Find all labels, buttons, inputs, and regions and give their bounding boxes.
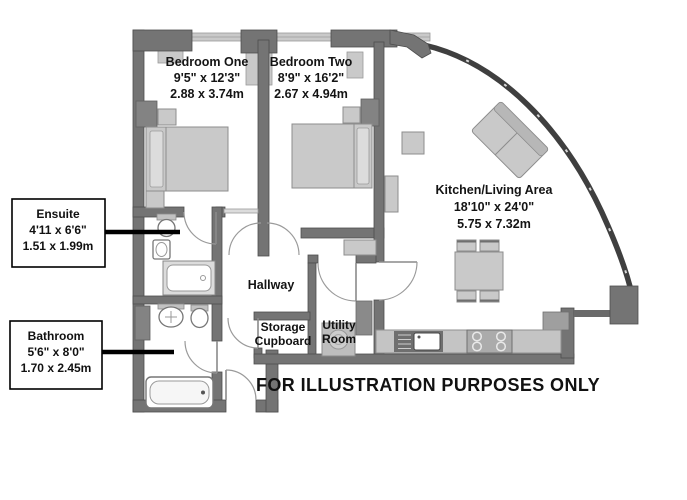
shelf-icon: [385, 176, 398, 212]
wall-step-block: [543, 312, 569, 330]
bedroom-two-imperial: 8'9" x 16'2": [278, 71, 345, 85]
side-table-icon: [146, 191, 164, 208]
wall-top-pier: [331, 30, 397, 47]
floor-plan-drawing: Bedroom One 9'5" x 12'3" 2.88 x 3.74m Be…: [0, 0, 687, 500]
kitchen-sink-icon: [394, 331, 443, 352]
wall-thin-right: [574, 310, 612, 317]
wall-kitchen-bottom: [254, 354, 574, 364]
hob-icon: [467, 330, 512, 353]
bathroom-callout-name: Bathroom: [28, 329, 85, 343]
kitchen-living-label: Kitchen/Living Area: [436, 183, 554, 197]
utility-room-label-line1: Utility: [322, 318, 356, 332]
nightstand-icon: [343, 107, 360, 123]
coffee-table-icon: [402, 132, 424, 154]
floor-plan-page: Bedroom One 9'5" x 12'3" 2.88 x 3.74m Be…: [0, 0, 687, 500]
hallway-label: Hallway: [248, 278, 295, 292]
storage-cupboard-label-line1: Storage: [261, 320, 306, 334]
kitchen-living-metric: 5.75 x 7.32m: [457, 217, 531, 231]
bathtub-drain: [201, 391, 205, 395]
wall-corner-column: [610, 286, 638, 324]
bathroom-callout-metric: 1.70 x 2.45m: [21, 361, 92, 375]
bedroom-two-metric: 2.67 x 4.94m: [274, 87, 348, 101]
bedroom-one-imperial: 9'5" x 12'3": [174, 71, 241, 85]
kitchen-living-imperial: 18'10" x 24'0": [454, 200, 534, 214]
wall-hall-utility: [308, 255, 318, 263]
storage-cupboard-label-line2: Cupboard: [255, 334, 312, 348]
pillow-icon: [357, 128, 369, 184]
bedroom-two-label: Bedroom Two: [270, 55, 353, 69]
wall-hall-utility: [356, 255, 376, 263]
ensuite-callout-name: Ensuite: [36, 207, 80, 221]
ensuite-callout-imperial: 4'11 x 6'6": [29, 223, 86, 237]
bedroom-one-metric: 2.88 x 3.74m: [170, 87, 244, 101]
utility-room-label-line2: Room: [322, 332, 356, 346]
wall-left: [133, 30, 144, 412]
nightstand-icon: [158, 109, 176, 125]
disclaimer-text: FOR ILLUSTRATION PURPOSES ONLY: [256, 375, 600, 395]
toilet-icon: [191, 309, 208, 328]
wall-ensuite-bathroom-divider: [133, 296, 222, 304]
utility-unit-icon: [356, 301, 372, 335]
bathroom-cabinet-icon: [135, 306, 150, 340]
wall-bedroom2-bottom: [301, 228, 384, 238]
bedroom-one-label: Bedroom One: [166, 55, 249, 69]
ensuite-callout-metric: 1.51 x 1.99m: [23, 239, 94, 253]
wall-bedroom2-kitchen: [374, 42, 384, 262]
wardrobe-icon: [136, 101, 157, 127]
interior-glazed-panel: [224, 209, 258, 213]
wardrobe-icon: [361, 99, 379, 126]
wall-top-pier: [133, 30, 192, 51]
cabinet-icon: [344, 240, 376, 255]
dining-table-icon: [455, 252, 503, 290]
bathroom-callout-imperial: 5'6" x 8'0": [27, 345, 84, 359]
pillow-icon: [150, 131, 163, 187]
wall-cupboard-top: [254, 312, 310, 320]
